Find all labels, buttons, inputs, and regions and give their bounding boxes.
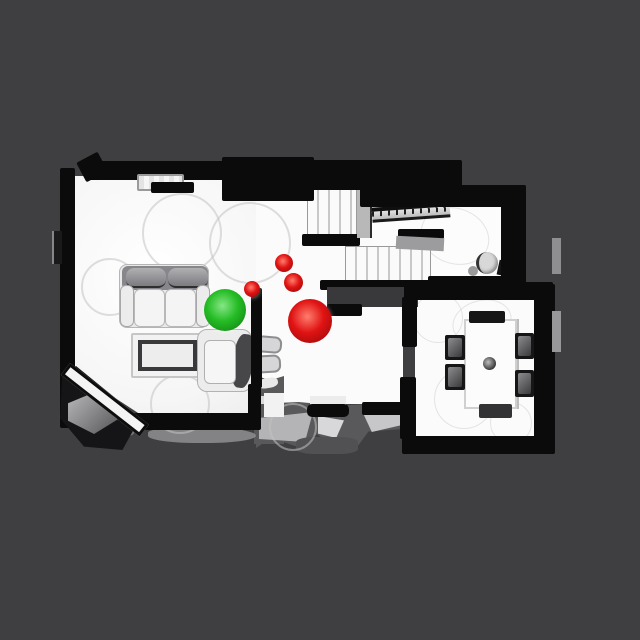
fixture-fragment (468, 266, 478, 276)
coffee-table (131, 333, 204, 378)
stair-landing-edge (302, 234, 360, 246)
sofa (119, 264, 209, 328)
railing-balusters (372, 206, 450, 216)
dining-chair (445, 335, 465, 360)
sofa-armrest (196, 285, 210, 327)
dining-bottom-wall (402, 436, 553, 454)
round-fixture (476, 252, 498, 274)
living-hall-wall (251, 288, 262, 388)
sofa-armrest (120, 285, 134, 327)
sofa-seat-cushion (165, 289, 196, 327)
living-hall-wall-lower (248, 384, 261, 430)
stair-railing-cap (396, 236, 445, 251)
dining-top-wall (404, 282, 553, 300)
chair-pad (448, 367, 462, 387)
upper-right-room-right-wall (501, 185, 526, 284)
chair-pad (518, 373, 531, 394)
entry-stoop-edge (307, 404, 349, 417)
left-wall-window-bump (52, 231, 62, 264)
chair-pad (518, 336, 531, 356)
armchair (197, 329, 252, 392)
staircase-upper-flight (307, 188, 357, 236)
exterior-scan-strip (552, 311, 561, 352)
under-stair-lip (327, 304, 362, 316)
dining-chair (515, 333, 534, 359)
window-seat-shadow (151, 182, 194, 193)
sofa-back (122, 266, 208, 290)
dining-chair (445, 364, 465, 390)
dining-right-wall (534, 284, 555, 454)
dining-chair (469, 311, 505, 323)
dining-chair (479, 404, 512, 418)
coffee-table-top (138, 340, 197, 371)
table-centerpiece (483, 357, 496, 370)
armchair-seat (204, 340, 236, 384)
staircase-lower-flight (345, 246, 431, 283)
floorplan-scene-viewport[interactable] (0, 0, 640, 640)
exterior-scan-strip (552, 238, 561, 274)
dining-left-wall-upper (402, 297, 417, 347)
hall-bottom-wall (362, 402, 407, 415)
doorway-gap (264, 393, 284, 417)
rug-circle (209, 202, 291, 284)
dining-chair (515, 370, 534, 397)
sofa-back-pillow (126, 268, 166, 288)
sofa-seat-cushion (134, 289, 165, 327)
chair-pad (448, 338, 462, 357)
